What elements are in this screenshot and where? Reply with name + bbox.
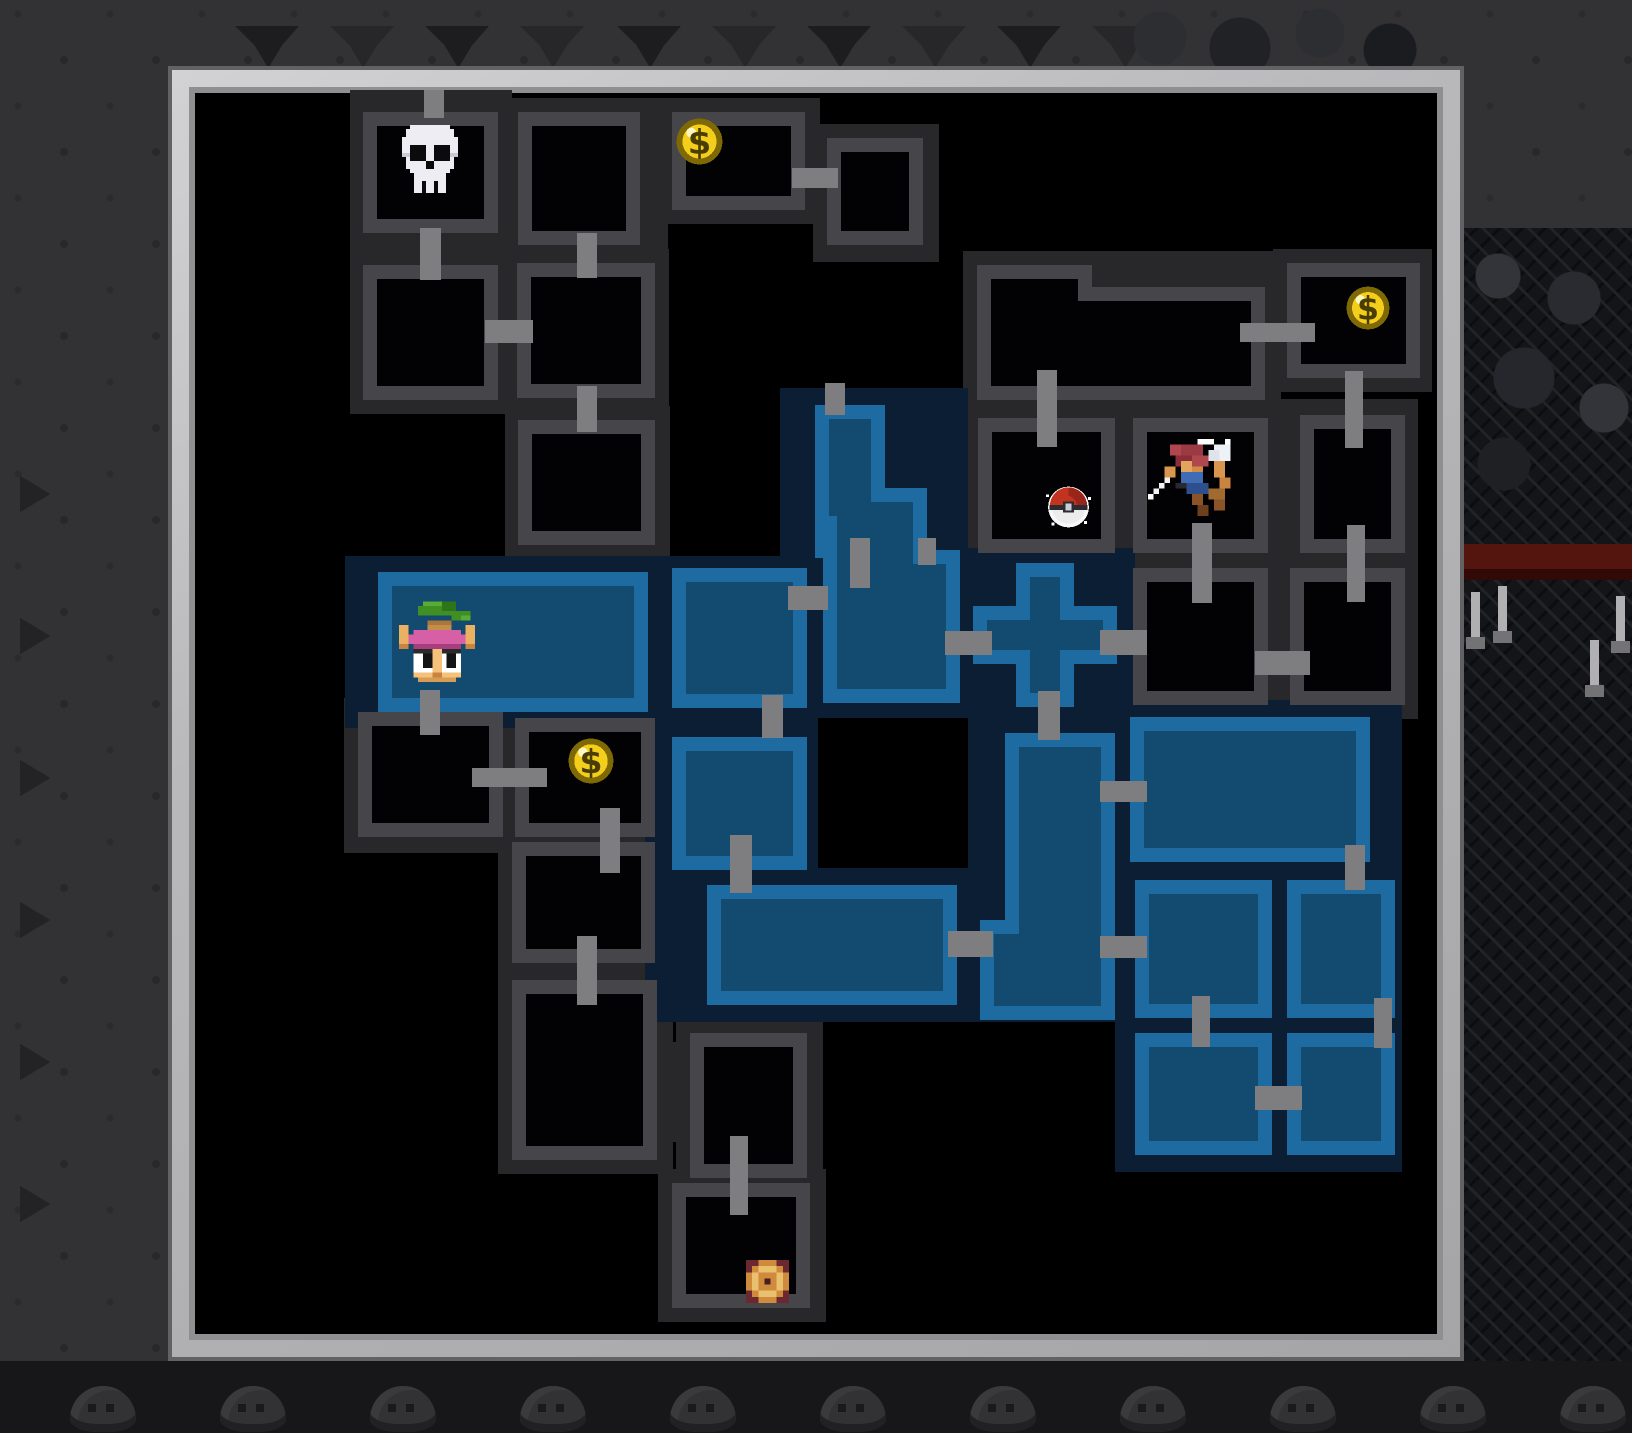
water-room-floor xyxy=(1149,1047,1258,1141)
corridor-connector xyxy=(1037,370,1057,447)
corridor-connector xyxy=(600,808,620,873)
coin-icon: $ xyxy=(1346,286,1390,330)
corridor-connector xyxy=(1038,691,1060,740)
corridor-connector xyxy=(1255,651,1310,675)
water-room-floor xyxy=(721,899,943,991)
water-room-floor xyxy=(987,620,1103,650)
corridor-connector xyxy=(1345,845,1365,890)
mushroom-npc-icon xyxy=(399,597,475,691)
svg-text:$: $ xyxy=(1357,292,1379,328)
corridor-connector xyxy=(485,320,533,343)
player-icon xyxy=(1148,438,1236,528)
water-room-floor xyxy=(837,502,913,572)
corridor-connector xyxy=(1100,781,1147,802)
corridor-connector xyxy=(850,538,870,588)
corridor-connector xyxy=(420,690,440,735)
corridor-connector xyxy=(1192,523,1212,603)
water-room-floor xyxy=(1301,1047,1381,1141)
corridor-connector xyxy=(420,228,441,280)
corridor-connector xyxy=(792,168,838,188)
corridor-connector xyxy=(762,695,783,738)
corridor-connector xyxy=(1255,1086,1302,1110)
corridor-connector xyxy=(948,931,993,957)
room-floor xyxy=(841,152,909,231)
skull-icon xyxy=(398,124,462,194)
corridor-connector xyxy=(577,936,597,1005)
corridor-connector xyxy=(1345,371,1363,448)
unexplored-hole xyxy=(818,718,968,868)
corridor-connector xyxy=(1100,630,1147,655)
room-floor xyxy=(377,279,484,386)
corridor-connector xyxy=(577,233,597,278)
room-floor xyxy=(532,126,626,231)
water-room-floor xyxy=(1019,747,1101,947)
stairs-icon xyxy=(746,1260,789,1303)
corridor-connector xyxy=(825,383,845,415)
corridor-connector xyxy=(472,768,547,787)
room-floor xyxy=(704,1047,793,1164)
minimap-canvas: $ $ $ xyxy=(0,0,1632,1433)
game-screen[interactable]: { "app": {"view": "dungeon-minimap-overl… xyxy=(0,0,1632,1433)
corridor-connector xyxy=(577,386,597,432)
coin-icon: $ xyxy=(568,738,614,784)
corridor-connector xyxy=(1100,936,1147,958)
room-floor xyxy=(531,277,641,384)
water-room-floor xyxy=(1149,894,1258,1004)
corridor-connector xyxy=(730,835,752,893)
corridor-connector xyxy=(918,538,936,565)
svg-text:$: $ xyxy=(688,123,712,162)
corridor-connector xyxy=(730,1136,748,1215)
corridor-connector xyxy=(1240,323,1315,342)
room-floor xyxy=(526,994,643,1146)
corridor-connector xyxy=(945,631,992,655)
coin-icon: $ xyxy=(676,118,723,165)
water-room-floor xyxy=(686,582,793,694)
room-floor xyxy=(532,434,641,531)
water-room-floor xyxy=(994,934,1101,1006)
room-floor xyxy=(991,301,1251,386)
corridor-connector xyxy=(1374,998,1392,1048)
corridor-connector xyxy=(788,586,828,610)
svg-text:$: $ xyxy=(580,742,603,781)
water-room-floor xyxy=(1301,894,1381,1004)
corridor-connector xyxy=(1192,996,1210,1047)
corridor-connector xyxy=(424,90,444,118)
pokeball-icon xyxy=(1046,483,1091,531)
water-room-floor xyxy=(1144,731,1356,848)
corridor-connector xyxy=(1347,525,1365,602)
